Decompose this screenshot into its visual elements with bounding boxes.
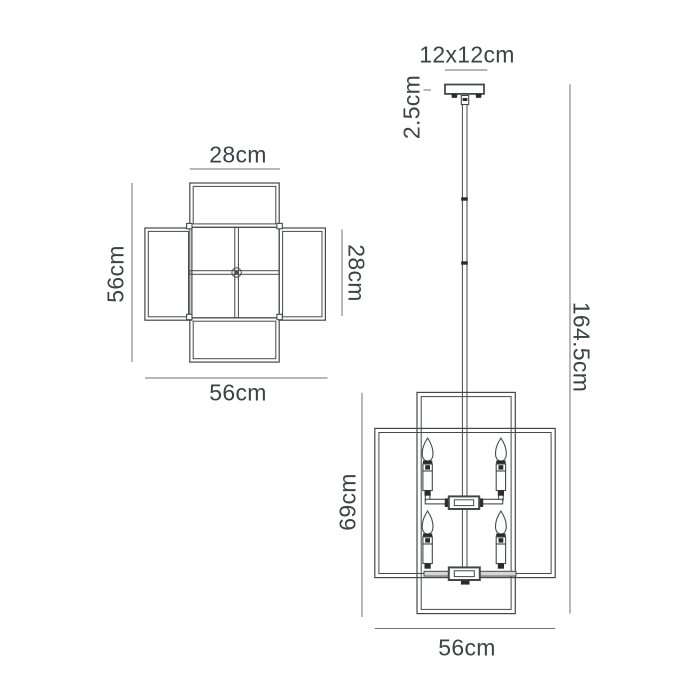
lower-finial: [461, 580, 470, 584]
plan-bottom-depth-label: 56cm: [209, 382, 266, 405]
plan-center-hub: [232, 268, 241, 277]
candle-lower-left: [422, 511, 433, 569]
upper-connector-block: [449, 496, 479, 509]
front-dimension-lines: [362, 70, 570, 629]
candle-upper-left: [422, 438, 433, 496]
candle-lower-right: [496, 511, 507, 569]
canopy-screw: [476, 94, 482, 98]
ceiling-canopy: [445, 85, 484, 105]
plan-left-depth-label: 56cm: [105, 245, 128, 302]
lower-connector-block: [449, 567, 480, 580]
candle-upper-right: [496, 438, 507, 496]
plan-cross-arms: [190, 227, 279, 318]
dimension-diagram: 28cm 56cm 28cm 56cm 12x12cm 2.5cm 164.5c…: [0, 0, 700, 700]
front-view-drawing: [362, 70, 570, 629]
overall-drop-label: 164.5cm: [570, 302, 593, 392]
canopy-size-label: 12x12cm: [419, 44, 514, 67]
body-width-label: 56cm: [438, 637, 495, 660]
plan-right-width-label: 28cm: [345, 244, 368, 301]
body-height-label: 69cm: [337, 473, 360, 530]
canopy-drop-label: 2.5cm: [401, 75, 424, 139]
canopy-screw: [452, 94, 458, 98]
connector-blocks: [445, 496, 483, 584]
plan-top-width-label: 28cm: [209, 144, 266, 167]
plan-view-drawing: [132, 169, 342, 378]
line-art: [0, 0, 700, 700]
canopy-plate: [445, 85, 484, 94]
rod-joint: [461, 261, 468, 264]
rod-joint: [461, 197, 468, 200]
